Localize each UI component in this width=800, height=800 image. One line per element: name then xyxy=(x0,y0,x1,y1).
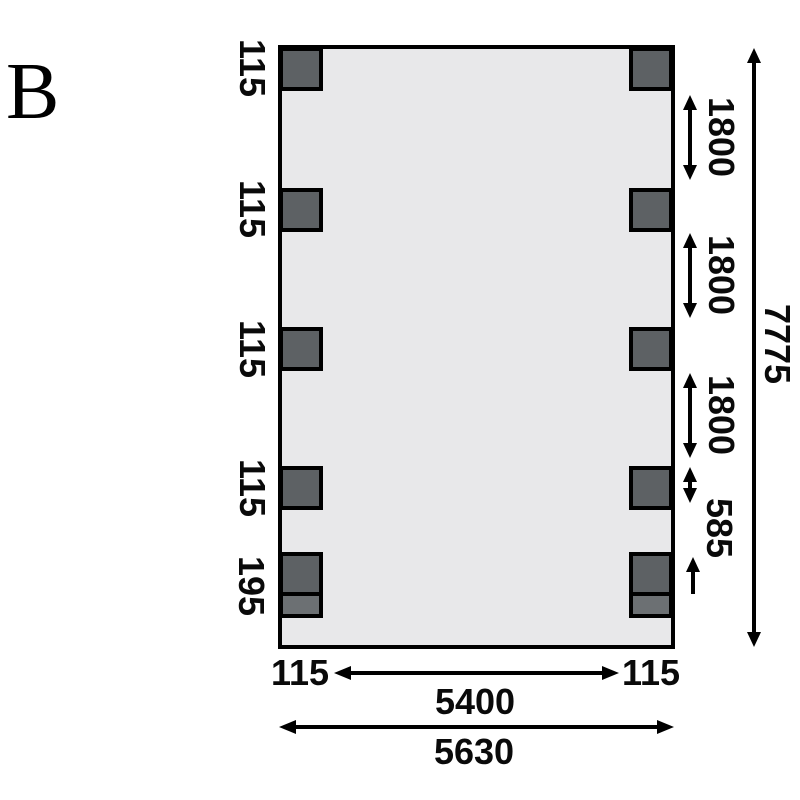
dim-label-left-post-3: 115 xyxy=(234,320,270,378)
dim-label-bottom-left-post: 115 xyxy=(271,655,329,691)
post-left-1 xyxy=(279,47,323,91)
foundation-plan-diagram: B 115 115 115 115 195 1800 1800 1800 585 xyxy=(0,0,800,800)
dim-arrow-spacing-1 xyxy=(683,95,697,180)
dim-arrow-gap-lower xyxy=(686,557,700,594)
post-left-3 xyxy=(279,327,323,371)
dim-label-total-width: 5630 xyxy=(434,734,514,770)
dim-label-left-post-1: 115 xyxy=(234,39,270,97)
dim-label-gap: 585 xyxy=(701,498,737,558)
figure-label: B xyxy=(6,52,59,132)
post-right-2 xyxy=(629,188,673,232)
post-left-4 xyxy=(279,466,323,510)
post-right-5 xyxy=(629,552,673,618)
post-left-2 xyxy=(279,188,323,232)
dim-label-left-post-4: 115 xyxy=(234,459,270,517)
dim-arrow-gap-upper xyxy=(683,467,697,503)
post-right-4 xyxy=(629,466,673,510)
post-foot-left xyxy=(283,592,319,614)
dim-label-left-post-5: 195 xyxy=(233,556,269,616)
post-foot-right xyxy=(633,592,669,614)
post-right-1 xyxy=(629,47,673,91)
dim-label-total-height: 7775 xyxy=(759,304,795,384)
dim-label-spacing-2: 1800 xyxy=(703,235,739,315)
dim-arrow-spacing-2 xyxy=(683,233,697,318)
plan-outline xyxy=(278,45,675,649)
dim-label-inner-width: 5400 xyxy=(435,684,515,720)
dim-label-spacing-1: 1800 xyxy=(703,97,739,177)
dim-arrow-inner-width xyxy=(334,666,619,680)
dim-label-spacing-3: 1800 xyxy=(703,375,739,455)
post-right-3 xyxy=(629,327,673,371)
dim-label-left-post-2: 115 xyxy=(234,180,270,238)
post-left-5 xyxy=(279,552,323,618)
dim-arrow-spacing-3 xyxy=(683,373,697,458)
dim-label-bottom-right-post: 115 xyxy=(622,655,680,691)
